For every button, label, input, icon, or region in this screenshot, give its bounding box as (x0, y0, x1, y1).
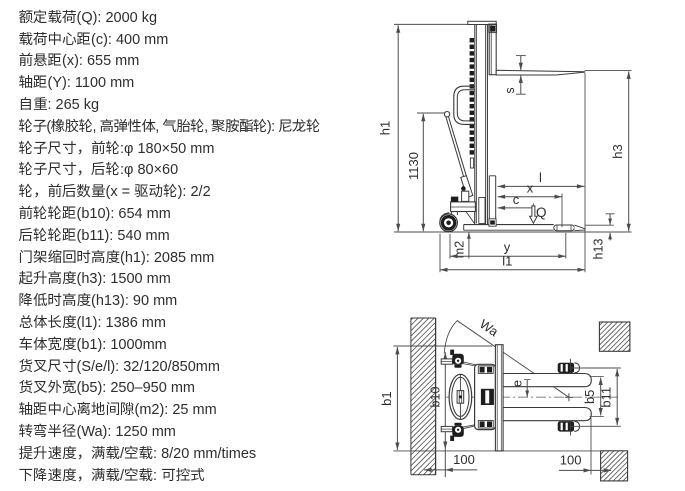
svg-text:s: s (503, 87, 517, 93)
svg-text:100: 100 (453, 452, 475, 467)
svg-text:h1: h1 (378, 121, 393, 135)
svg-text:x: x (527, 180, 534, 195)
svg-text:l1: l1 (502, 253, 512, 268)
svg-text:h3: h3 (610, 144, 625, 158)
svg-text:b1: b1 (379, 391, 394, 405)
svg-text:1130: 1130 (406, 152, 421, 180)
svg-text:c: c (513, 192, 520, 207)
svg-text:l: l (539, 170, 542, 185)
svg-text:b5: b5 (582, 390, 597, 404)
svg-text:100: 100 (560, 453, 582, 468)
svg-text:Q: Q (536, 205, 547, 220)
svg-text:e: e (511, 380, 525, 387)
svg-text:b10: b10 (429, 387, 443, 408)
svg-text:h13: h13 (592, 239, 606, 260)
